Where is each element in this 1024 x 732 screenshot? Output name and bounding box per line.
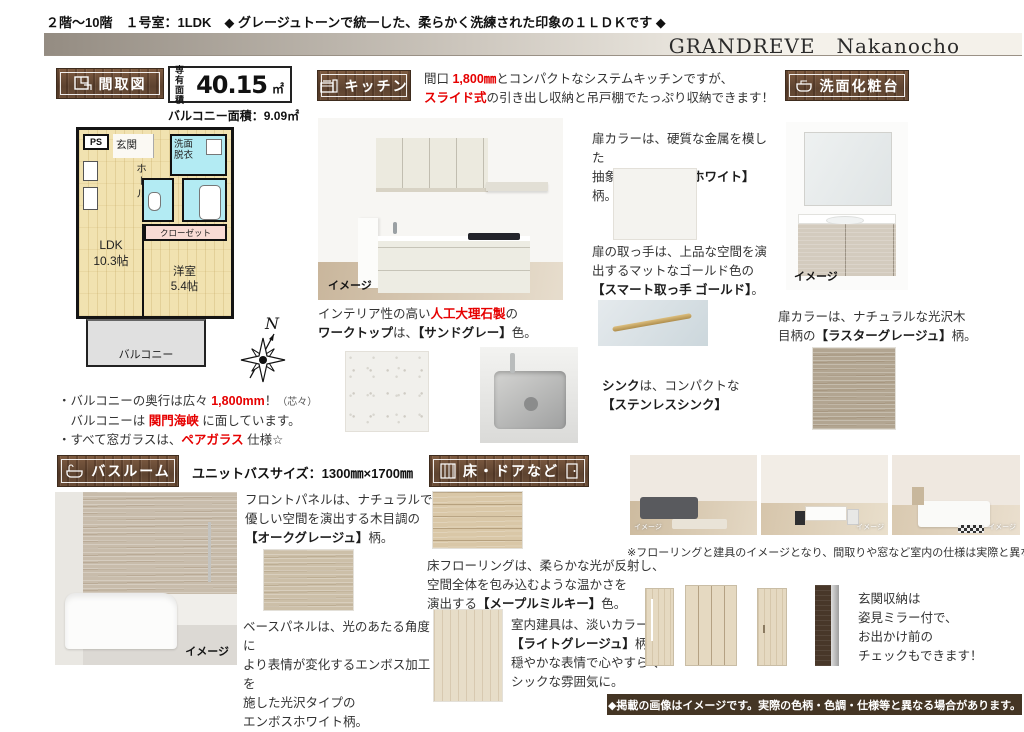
compass: N — [236, 314, 292, 386]
kitchen-base-cabinets — [378, 236, 530, 293]
area-unit: ㎡ — [272, 80, 284, 100]
bathtub-icon — [65, 464, 84, 479]
kitchen-icon — [320, 78, 338, 94]
door-1-handle — [651, 599, 653, 641]
room-washroom-label: 洗面 脱衣 — [174, 139, 193, 161]
shower-bar — [208, 522, 211, 582]
note-line-1: ・バルコニーの奥行は広々 1,800mm！（芯々） — [58, 392, 317, 412]
room-ps: PS — [83, 134, 109, 150]
flooring-plank-swatch — [432, 491, 523, 549]
dining-image-label: イメージ — [856, 522, 884, 532]
handle-text: 扉の取っ手は、上品な空間を演 出するマットなゴールド色の 【スマート取っ手 ゴー… — [592, 243, 772, 300]
bedroom-headboard — [912, 487, 924, 505]
dining-table — [805, 506, 847, 521]
worktop-text: インテリア性の高い人工大理石製の ワークトップは、【サンドグレー】色。 — [318, 305, 537, 343]
bathroom-photo: イメージ — [55, 492, 237, 665]
bathtub — [65, 593, 177, 649]
note-line-3: ・すべて窓ガラスは、ペアガラス 仕様☆ — [58, 431, 317, 450]
bathroom-base-text: ベースパネルは、光のあたる角度に より表情が変化するエンボス加工を 施した光沢タ… — [243, 618, 438, 732]
section-header-floorplan: 間取図 — [57, 69, 163, 98]
kitchen-upper-cabinets — [376, 138, 488, 192]
gold-handle — [612, 313, 692, 332]
vanity-door-text: 扉カラーは、ナチュラルな光沢木 目柄の【ラスターグレージュ】柄。 — [778, 308, 998, 346]
vanity-photo: イメージ — [786, 122, 908, 290]
flooring-icon — [440, 463, 456, 479]
bedroom-bed — [918, 501, 990, 527]
handle-photo — [598, 300, 708, 346]
room-genkan-label: 玄関 — [116, 137, 137, 152]
interior-photo-dining: イメージ — [761, 455, 888, 535]
compass-n-label: N — [264, 314, 280, 333]
maple-milky-swatch — [433, 609, 503, 702]
section-header-kitchen: キッチン — [318, 71, 410, 100]
floorplan-icon — [74, 76, 92, 91]
section-title-bathroom: バスルーム — [91, 461, 171, 481]
interior-photo-living: イメージ — [630, 455, 757, 535]
sink-text: シンクは、コンパクトな 【ステンレスシンク】 — [602, 377, 740, 415]
entrance-storage-cabinet — [815, 585, 839, 666]
room-bedroom-label: 洋室 5.4帖 — [142, 265, 227, 295]
bathroom-front-panel — [83, 492, 237, 594]
kitchen-sink-fixture — [83, 187, 98, 210]
exclusive-area-box: 専有 面積 40.15 ㎡ — [168, 66, 292, 103]
section-title-kitchen: キッチン — [345, 76, 409, 96]
room-closet-label: クローゼット — [160, 227, 211, 239]
room-toilet — [142, 178, 174, 222]
kitchen-cooktop — [468, 233, 520, 240]
interior-photo-bedroom: イメージ — [892, 455, 1020, 535]
section-title-floorplan: 間取図 — [99, 74, 147, 94]
room-balcony: バルコニー — [86, 319, 206, 367]
footer-disclaimer: ◆掲載の画像はイメージです。実際の色柄・色調・仕様等と異なる場合があります。 — [607, 694, 1022, 715]
balcony-area-text: バルコニー面積：9.09㎡ — [168, 107, 299, 124]
sink-photo — [480, 347, 578, 443]
lustre-greige-swatch — [812, 347, 896, 430]
kitchen-stove-fixture — [83, 161, 98, 181]
kitchen-image-label: イメージ — [328, 277, 372, 293]
kitchen-intro: 間口 1,800㎜とコンパクトなシステムキッチンですが、 スライド式の引き出し収… — [424, 70, 784, 108]
kitchen-range-hood — [486, 182, 548, 191]
living-image-label: イメージ — [634, 522, 662, 532]
modewhite-swatch — [613, 168, 697, 240]
oak-greige-swatch — [263, 549, 354, 611]
section-header-floordoors: 床・ドアなど — [430, 456, 588, 486]
dining-chair-left — [795, 511, 805, 525]
bathtub-fixture — [199, 185, 221, 220]
floorplan-notes: ・バルコニーの奥行は広々 1,800mm！（芯々） バルコニーは 関門海峡 に面… — [58, 392, 317, 450]
section-header-vanity: 洗面化粧台 — [786, 71, 908, 100]
section-title-floordoors: 床・ドアなど — [463, 461, 559, 481]
note-line-2: バルコニーは 関門海峡 に面しています。 — [58, 412, 317, 431]
toilet-fixture — [148, 192, 161, 211]
floor-plan: PS 玄関 洗面 脱衣 ホール クローゼット 洋室 5.4帖 LDK 10.3帖… — [76, 127, 234, 379]
title-bar: GRANDREVE Nakanocho — [44, 33, 1022, 56]
section-title-vanity: 洗面化粧台 — [820, 76, 900, 96]
bedroom-image-label: イメージ — [988, 522, 1016, 532]
page-top-header: ２階～10階 １号室：1LDK ◆ グレージュトーンで統一した、柔らかく洗練され… — [46, 12, 666, 31]
kitchen-photo: イメージ — [318, 118, 563, 300]
bathroom-front-text: フロントパネルは、ナチュラルで 優しい空間を演出する木目調の 【オークグレージュ… — [245, 491, 435, 548]
section-header-bathroom: バスルーム — [58, 456, 178, 486]
room-ldk-label: LDK 10.3帖 — [80, 237, 142, 269]
door-2-handle — [763, 625, 765, 633]
entrance-storage-wood — [815, 585, 831, 666]
bedroom-checker-mat — [958, 525, 984, 533]
interior-door-1 — [645, 588, 674, 666]
entrance-storage-mirror — [831, 585, 839, 666]
door-icon — [566, 463, 578, 479]
building-title: GRANDREVE Nakanocho — [669, 30, 960, 59]
unitbath-size-text: ユニットバスサイズ：1300㎜×1700㎜ — [192, 463, 413, 482]
kitchen-faucet — [393, 222, 397, 234]
vanity-image-label: イメージ — [794, 268, 838, 284]
washing-machine — [206, 139, 222, 155]
interior-door-2 — [757, 588, 787, 666]
vanity-mirror — [804, 132, 892, 206]
room-closet: クローゼット — [144, 224, 227, 241]
room-balcony-label: バルコニー — [88, 346, 204, 362]
bathroom-image-label: イメージ — [185, 643, 229, 659]
sink-drain — [524, 397, 538, 411]
interior-photos-note: ※フローリングと建具のイメージとなり、間取りや窓など室内の仕様は実際と異なります… — [627, 544, 1024, 560]
sink-faucet — [510, 353, 515, 373]
living-sofa — [640, 497, 698, 519]
closet-folding-doors — [685, 585, 737, 666]
vanity-sink-icon — [795, 79, 813, 93]
entrance-storage-text: 玄関収納は 姿見ミラー付で、 お出かけ前の チェックもできます！ — [858, 590, 983, 666]
area-value: 40.15 — [196, 71, 267, 99]
area-label: 専有 面積 — [175, 65, 191, 105]
living-rug — [672, 519, 727, 529]
worktop-sandgrey-swatch — [345, 351, 429, 432]
room-bath — [182, 178, 227, 222]
